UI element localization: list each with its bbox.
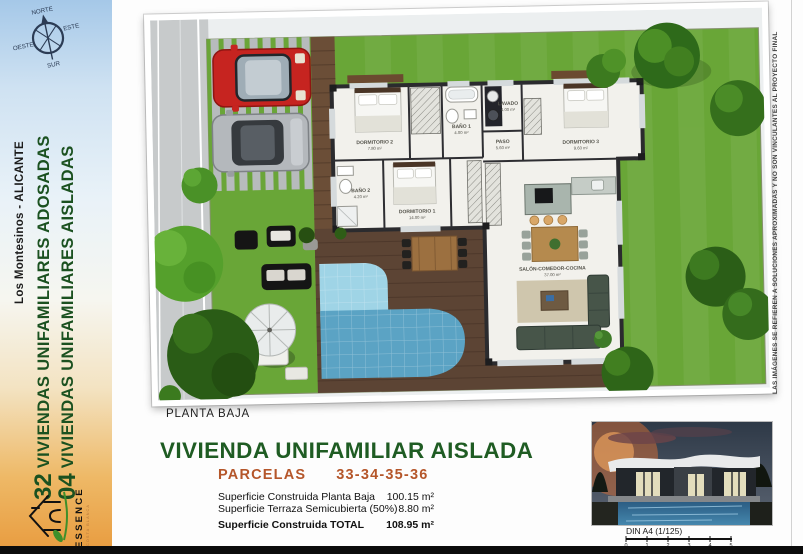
compass-west-label: OESTE (12, 41, 34, 52)
bottom-bar (0, 546, 803, 554)
svg-text:5.60 m²: 5.60 m² (496, 145, 511, 150)
surface-row-total: Superficie Construida TOTAL108.95 m² (218, 520, 434, 532)
svg-text:14.00 m²: 14.00 m² (409, 215, 426, 220)
page-title: VIVIENDA UNIFAMILIAR AISLADA (160, 438, 533, 464)
svg-text:4.00 m²: 4.00 m² (454, 130, 469, 135)
parcels-line: PARCELAS 33-34-35-36 (218, 467, 428, 483)
location-label: Los Montesinos - ALICANTE (14, 141, 26, 304)
compass-east-label: ESTE (63, 22, 80, 32)
compass-south-label: SUR (47, 60, 62, 68)
parcels-label: PARCELAS (218, 467, 306, 483)
surface-table: Superficie Construida Planta Baja100.15 … (218, 492, 434, 532)
bed-dormitorio-2 (355, 87, 402, 132)
svg-text:37.00 m²: 37.00 m² (544, 272, 561, 277)
svg-text:4.00 m²: 4.00 m² (501, 107, 516, 112)
surface-row: Superficie Construida Planta Baja100.15 … (218, 492, 434, 504)
plan-caption: PLANTA BAJA (166, 408, 250, 420)
parcels-numbers: 33-34-35-36 (336, 467, 428, 483)
essence-logo: ESSENCE COSTA BLANCA (16, 478, 102, 552)
bed-dormitorio-3 (564, 83, 609, 128)
compass-north-label: NORTE (31, 5, 54, 16)
sidebar-line-aisladas: 04VIVIENDAS UNIFAMILIARES AISLADAS (55, 145, 82, 500)
svg-text:4.20 m²: 4.20 m² (354, 194, 369, 199)
silver-car (212, 108, 309, 177)
sidebar-line-adosadas: 32VIVIENDAS UNIFAMILIARES ADOSADAS (31, 135, 58, 500)
site-plan-drawing: DORMITORIO 2 7.80 m² BAÑO 1 4.00 m² LAVA… (150, 8, 770, 401)
logo-subtitle: COSTA BLANCA (86, 504, 90, 546)
living-set (516, 275, 613, 350)
logo-name: ESSENCE (74, 487, 85, 548)
compass-rose-icon: NORTE ESTE SUR OESTE (10, 4, 86, 68)
svg-text:9.60 m²: 9.60 m² (574, 145, 589, 150)
surface-row: Superficie Terraza Semicubierta (50%)8.8… (218, 504, 434, 516)
villa-photo (592, 422, 772, 525)
right-divider (791, 0, 792, 554)
site-plan: DORMITORIO 2 7.80 m² BAÑO 1 4.00 m² LAVA… (144, 2, 776, 407)
brochure-page: NORTE ESTE SUR OESTE Los Montesinos - AL… (0, 0, 803, 554)
red-car (213, 43, 311, 112)
scale-label: DIN A4 (1/125) (626, 526, 682, 536)
bed-dormitorio-1 (393, 162, 436, 205)
svg-text:7.80 m²: 7.80 m² (368, 146, 383, 151)
sidebar: NORTE ESTE SUR OESTE Los Montesinos - AL… (0, 0, 112, 554)
disclaimer-text: LAS IMÁGENES SE REFIEREN A SOLUCIONES AP… (772, 31, 779, 394)
